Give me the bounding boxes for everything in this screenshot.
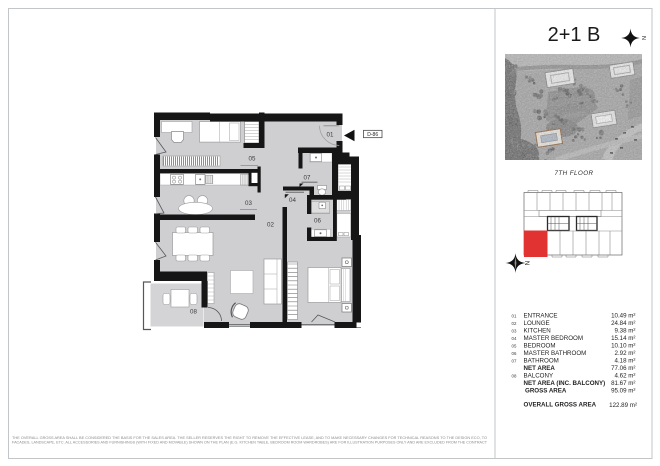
svg-text:BALCONY: BALCONY — [524, 373, 554, 380]
svg-text:D-86: D-86 — [367, 132, 378, 138]
svg-text:24.84 m²: 24.84 m² — [611, 320, 635, 327]
svg-text:10.49 m²: 10.49 m² — [611, 313, 635, 320]
svg-text:05: 05 — [512, 343, 517, 348]
svg-text:04: 04 — [289, 197, 296, 204]
svg-text:2.92 m²: 2.92 m² — [615, 350, 636, 357]
svg-text:06: 06 — [314, 218, 321, 225]
svg-text:BATHROOM: BATHROOM — [524, 358, 559, 365]
svg-text:MASTER BATHROOM: MASTER BATHROOM — [524, 350, 587, 357]
svg-text:KITCHEN: KITCHEN — [524, 328, 551, 335]
svg-text:03: 03 — [512, 328, 517, 333]
svg-text:THE OVERALL GROSS AREA SHALL B: THE OVERALL GROSS AREA SHALL BE CONSIDER… — [12, 436, 487, 440]
svg-text:95.09 m²: 95.09 m² — [611, 388, 635, 395]
svg-text:BEDROOM: BEDROOM — [524, 343, 556, 350]
svg-text:4.62 m²: 4.62 m² — [615, 373, 636, 380]
svg-text:04: 04 — [512, 336, 517, 341]
svg-text:NET AREA (INC. BALCONY): NET AREA (INC. BALCONY) — [524, 380, 606, 387]
svg-text:N: N — [642, 36, 648, 40]
svg-text:01: 01 — [512, 313, 517, 318]
svg-text:ENTRANCE: ENTRANCE — [524, 313, 558, 320]
svg-text:4.18 m²: 4.18 m² — [615, 358, 636, 365]
svg-text:05: 05 — [249, 156, 256, 163]
svg-text:02: 02 — [267, 222, 274, 229]
svg-text:07: 07 — [304, 175, 311, 182]
svg-text:9.38 m²: 9.38 m² — [615, 328, 636, 335]
svg-text:LOUNGE: LOUNGE — [524, 320, 550, 327]
svg-text:01: 01 — [327, 132, 334, 139]
svg-text:N: N — [526, 261, 532, 265]
svg-text:FACADES, LANDSCAPE, ETC. ALL A: FACADES, LANDSCAPE, ETC. ALL ACCESSORIES… — [12, 441, 487, 445]
svg-text:NET AREA: NET AREA — [524, 365, 556, 372]
svg-text:OVERALL GROSS AREA: OVERALL GROSS AREA — [524, 402, 597, 409]
svg-text:06: 06 — [512, 351, 517, 356]
svg-text:81.67 m²: 81.67 m² — [611, 380, 635, 387]
svg-text:2+1 B: 2+1 B — [548, 24, 601, 46]
svg-text:07: 07 — [512, 358, 517, 363]
svg-text:77.06 m²: 77.06 m² — [611, 365, 635, 372]
svg-text:GROSS AREA: GROSS AREA — [525, 388, 567, 395]
svg-text:MASTER BEDROOM: MASTER BEDROOM — [524, 335, 583, 342]
svg-text:10.10 m²: 10.10 m² — [611, 343, 635, 350]
svg-text:7TH FLOOR: 7TH FLOOR — [555, 170, 594, 177]
svg-text:08: 08 — [190, 309, 197, 316]
svg-text:122.89 m²: 122.89 m² — [609, 402, 637, 409]
svg-text:03: 03 — [245, 200, 252, 207]
svg-text:15.14 m²: 15.14 m² — [611, 335, 635, 342]
svg-text:02: 02 — [512, 321, 517, 326]
svg-text:08: 08 — [512, 373, 517, 378]
